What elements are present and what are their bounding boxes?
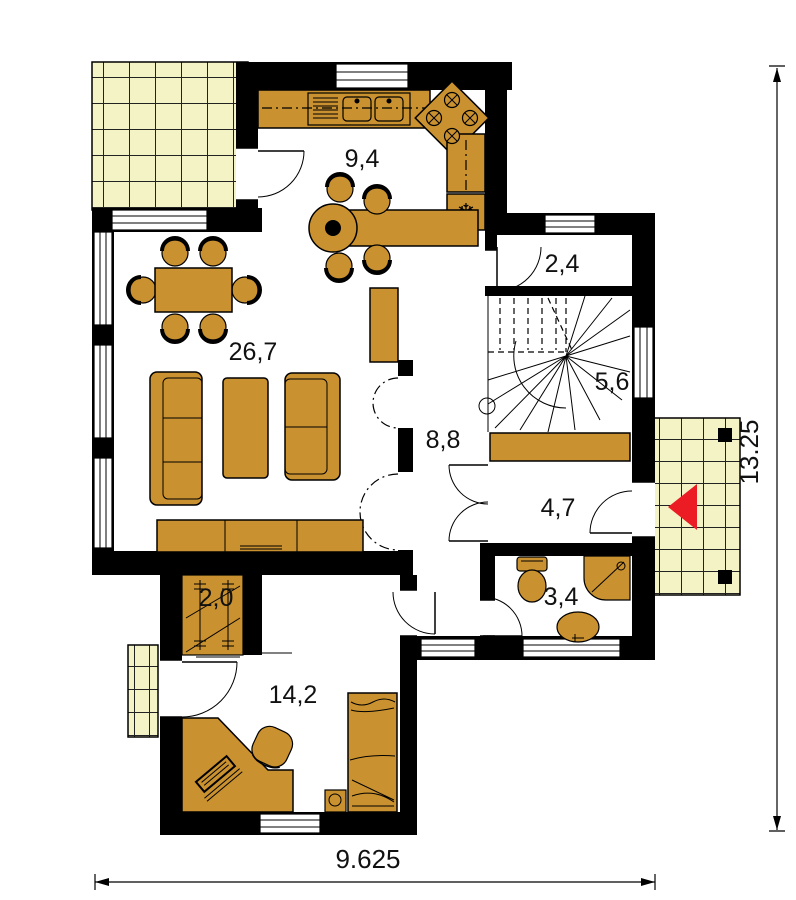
label-kitchen: 9,4 <box>345 145 380 173</box>
window-stairs-right <box>634 327 653 398</box>
door-vestibule <box>485 247 541 291</box>
table-bench <box>348 210 478 246</box>
door-bedroom-terrace <box>160 660 237 717</box>
stairs-winders <box>488 296 630 432</box>
dining-set <box>128 238 260 342</box>
window-bedroom-bottom <box>260 814 320 833</box>
corner-shower <box>584 549 630 600</box>
toilet <box>517 557 547 602</box>
dimension-width-label: 9.625 <box>335 844 400 874</box>
stairs-newel <box>479 398 495 414</box>
label-entry-hall: 4,7 <box>541 494 576 522</box>
porch-post <box>718 570 732 584</box>
opening-living-hall-2 <box>360 474 398 550</box>
floor-plan-canvas: ❄ <box>0 0 796 900</box>
living-room-furniture <box>128 238 363 552</box>
washbasin <box>557 612 599 642</box>
terrace-top-left <box>92 62 248 210</box>
small-terrace-tiles <box>128 645 158 737</box>
nightstand <box>325 790 346 812</box>
door-terrace-kitchen <box>236 148 304 200</box>
sofa-3seat <box>150 372 202 505</box>
door-bedroom <box>393 590 435 636</box>
label-vestibule: 2,4 <box>545 250 580 278</box>
dimension-width: 9.625 <box>95 844 655 890</box>
kitchen-furniture: ❄ <box>258 81 489 362</box>
door-main-entrance <box>590 482 655 537</box>
entry-porch <box>652 418 740 595</box>
sofa-2seat <box>285 373 340 480</box>
floor-plan-drawing: ❄ <box>0 0 796 900</box>
porch-post <box>718 428 732 442</box>
dimension-height-label: 13.25 <box>734 419 764 484</box>
double-door-entry-hall <box>449 465 488 541</box>
stairs-upper-flight <box>488 298 566 352</box>
label-living-room: 26,7 <box>229 338 278 366</box>
bedroom-furniture <box>182 693 397 812</box>
label-bathroom: 3,4 <box>544 583 579 611</box>
label-wardrobe: 2,0 <box>199 584 234 612</box>
terrace-bottom-left <box>128 645 158 737</box>
window-bath-bottom-1 <box>421 639 475 657</box>
coffee-table <box>223 378 268 478</box>
window-kitchen-top <box>336 64 408 88</box>
door-bathroom <box>480 597 522 636</box>
label-staircase: 5,6 <box>595 368 630 396</box>
under-stair-cabinet <box>490 433 630 461</box>
label-hall: 8,8 <box>426 426 461 454</box>
bed <box>348 693 397 812</box>
kitchen-island <box>370 288 398 362</box>
window-living-top <box>112 210 207 230</box>
terrace-tiles <box>92 62 248 210</box>
window-living-left-3 <box>94 458 112 548</box>
dining-table <box>155 268 232 312</box>
window-vestibule-top <box>545 215 595 233</box>
kitchen-sink <box>308 93 410 125</box>
dimension-height: 13.25 <box>734 66 785 831</box>
window-living-left-1 <box>94 232 112 325</box>
tv-sideboard <box>157 520 363 552</box>
label-bedroom: 14,2 <box>269 681 318 709</box>
opening-living-hall-1 <box>373 378 398 428</box>
window-living-left-2 <box>94 345 112 438</box>
